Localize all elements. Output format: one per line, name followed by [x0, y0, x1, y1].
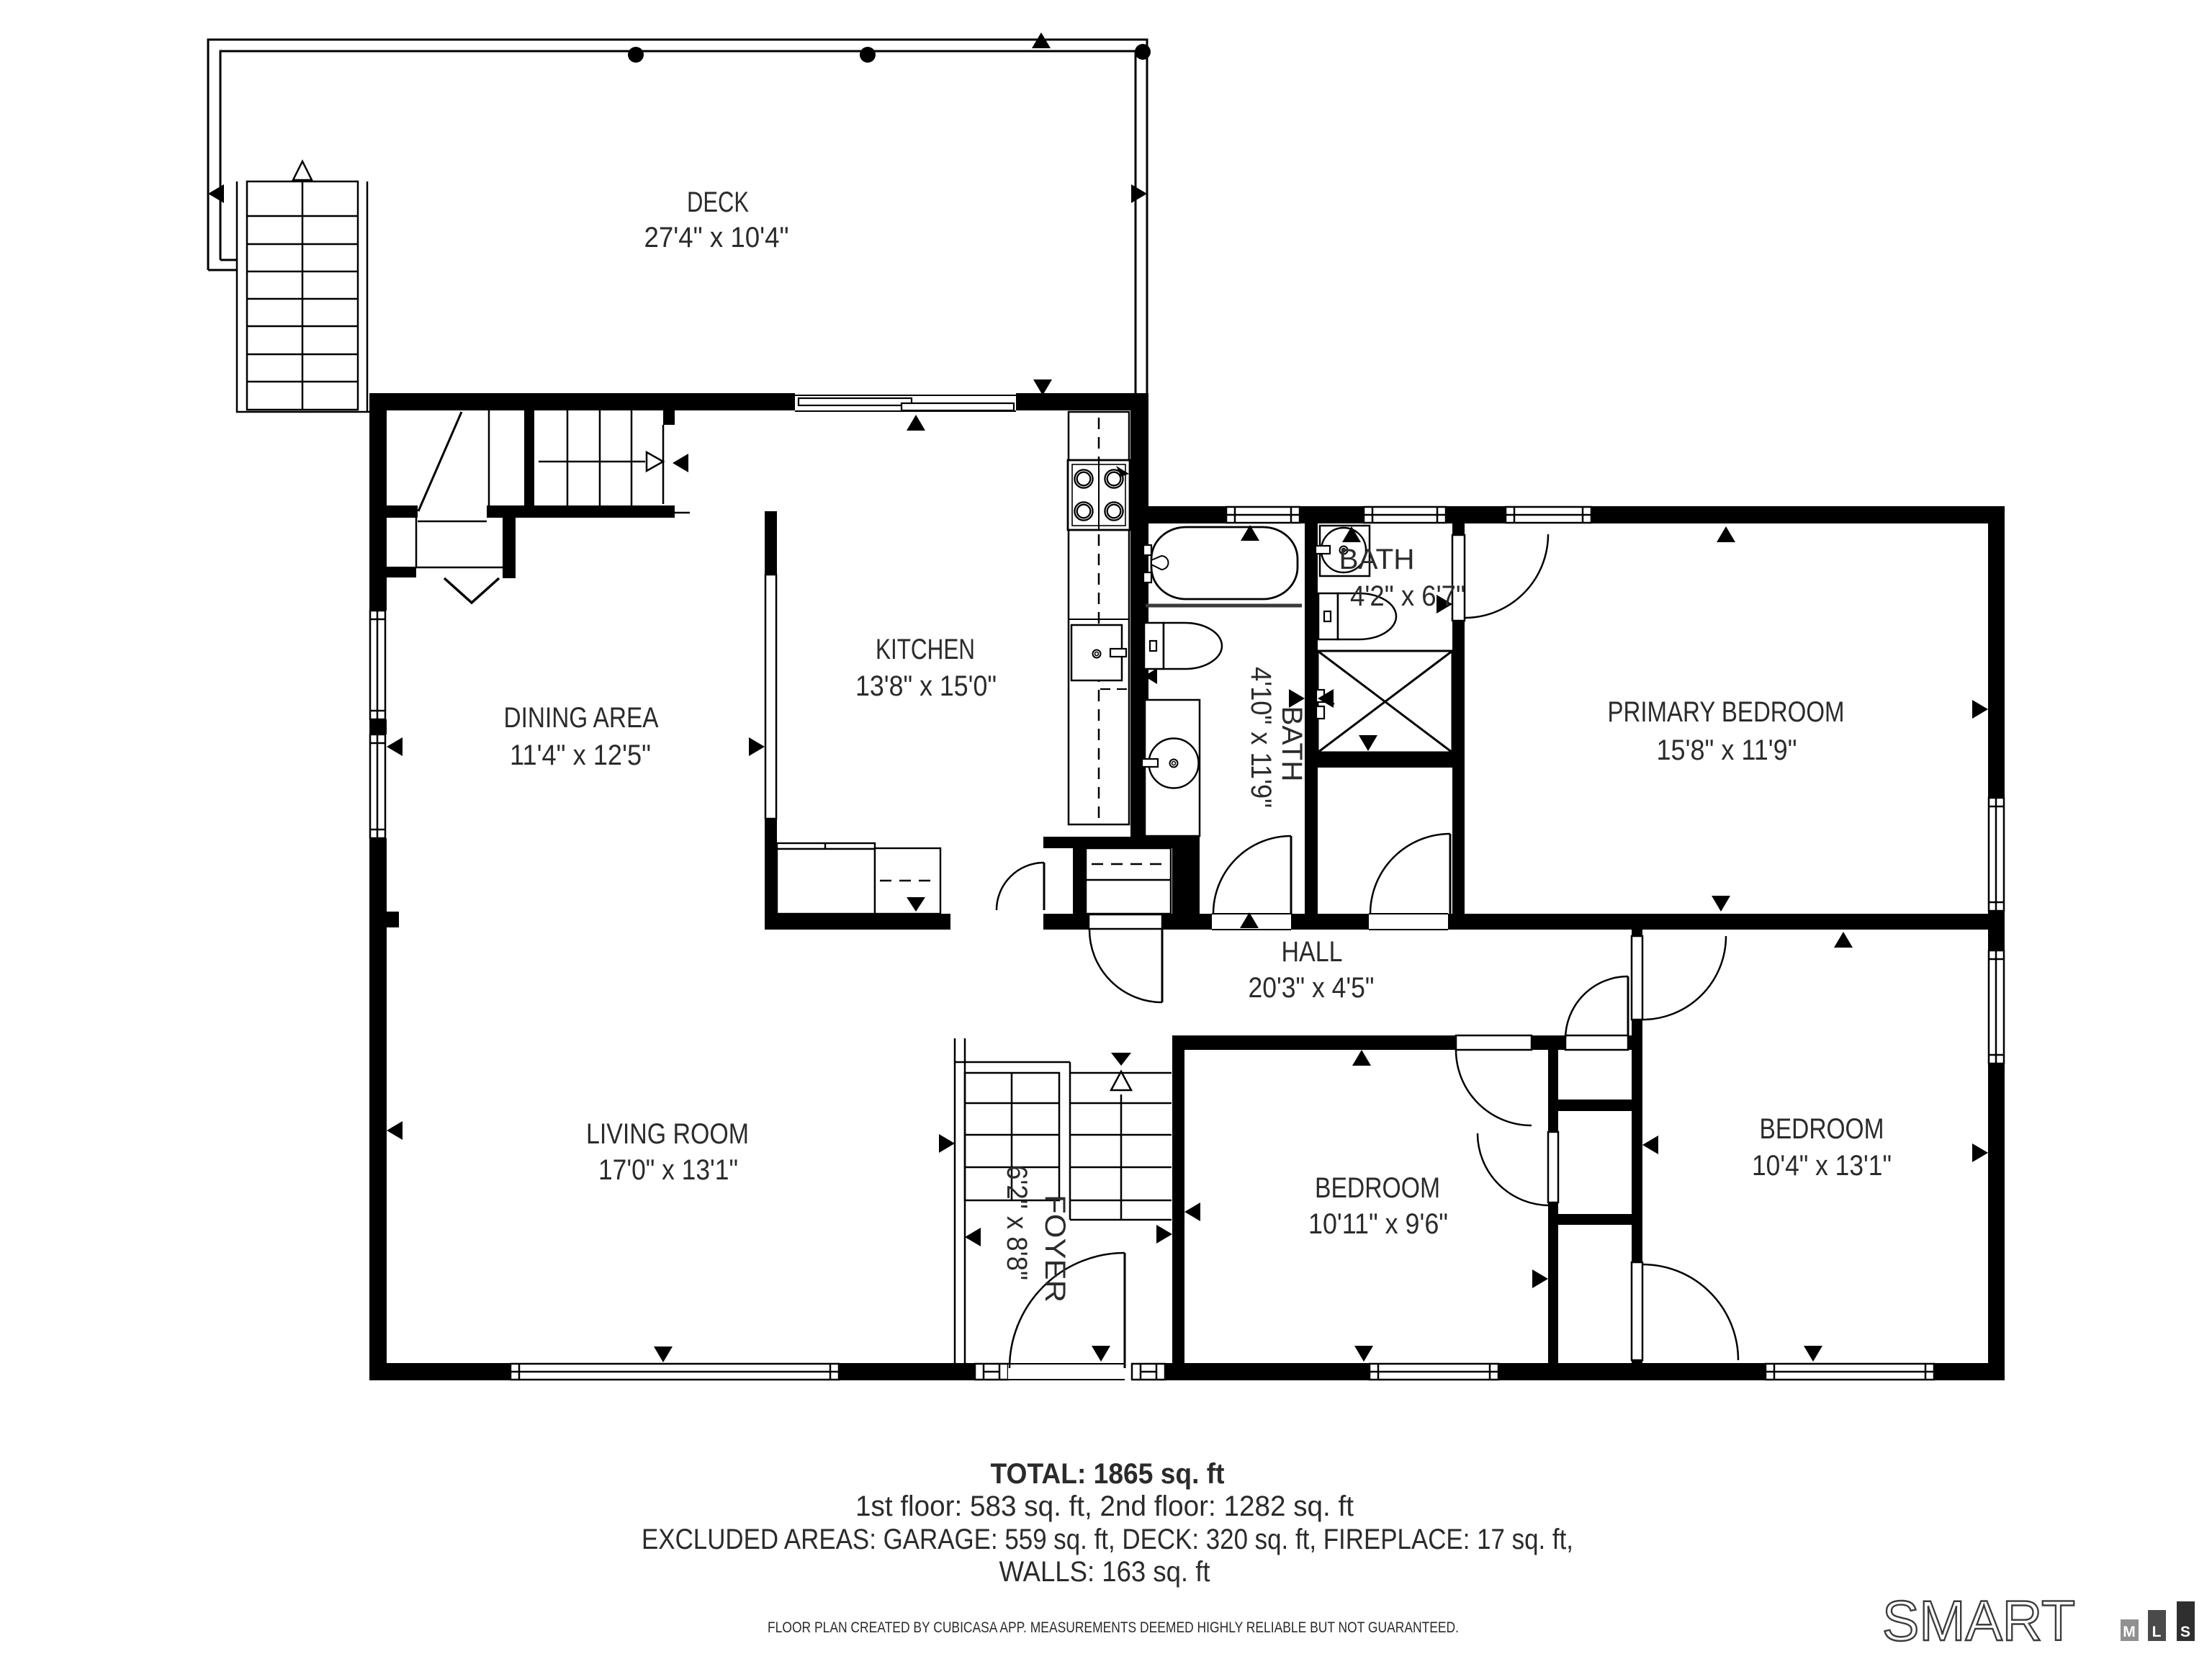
svg-text:BATH: BATH [1339, 544, 1415, 575]
svg-text:BATH: BATH [1276, 706, 1308, 782]
svg-text:27'4" x 10'4": 27'4" x 10'4" [644, 222, 789, 253]
svg-text:FOYER: FOYER [1039, 1195, 1071, 1303]
svg-text:13'8" x 15'0": 13'8" x 15'0" [855, 670, 997, 702]
svg-text:HALL: HALL [1282, 936, 1343, 968]
svg-text:1st floor: 583 sq. ft, 2nd flo: 1st floor: 583 sq. ft, 2nd floor: 1282 s… [855, 1491, 1354, 1522]
svg-text:LIVING ROOM: LIVING ROOM [586, 1118, 749, 1150]
svg-text:BEDROOM: BEDROOM [1760, 1113, 1884, 1145]
svg-text:4'2" x 6'7": 4'2" x 6'7" [1350, 580, 1465, 612]
svg-text:4'10" x 11'9": 4'10" x 11'9" [1245, 667, 1277, 808]
svg-text:KITCHEN: KITCHEN [876, 634, 975, 665]
svg-text:FLOOR PLAN CREATED BY CUBICASA: FLOOR PLAN CREATED BY CUBICASA APP. MEAS… [768, 1619, 1459, 1636]
svg-text:17'0" x 13'1": 17'0" x 13'1" [598, 1154, 738, 1186]
svg-text:S: S [2180, 1624, 2190, 1640]
svg-text:TOTAL: 1865 sq. ft: TOTAL: 1865 sq. ft [991, 1458, 1225, 1490]
svg-text:6'2" x 8'8": 6'2" x 8'8" [1001, 1165, 1033, 1280]
svg-text:15'8" x 11'9": 15'8" x 11'9" [1657, 734, 1797, 766]
svg-text:WALLS: 163 sq. ft: WALLS: 163 sq. ft [999, 1556, 1210, 1588]
svg-text:BEDROOM: BEDROOM [1315, 1172, 1440, 1204]
svg-text:10'11" x 9'6": 10'11" x 9'6" [1308, 1208, 1448, 1240]
svg-text:M: M [2123, 1624, 2136, 1640]
svg-text:DINING AREA: DINING AREA [504, 702, 659, 734]
svg-text:L: L [2152, 1624, 2162, 1640]
svg-text:11'4" x 12'5": 11'4" x 12'5" [510, 739, 651, 771]
svg-text:SMART: SMART [1882, 1588, 2075, 1653]
svg-text:PRIMARY BEDROOM: PRIMARY BEDROOM [1608, 696, 1845, 728]
svg-text:DECK: DECK [687, 186, 749, 218]
svg-text:10'4" x 13'1": 10'4" x 13'1" [1752, 1150, 1892, 1182]
svg-text:EXCLUDED AREAS: GARAGE: 559 sq: EXCLUDED AREAS: GARAGE: 559 sq. ft, DECK… [642, 1524, 1573, 1555]
svg-text:20'3" x 4'5": 20'3" x 4'5" [1249, 972, 1375, 1004]
